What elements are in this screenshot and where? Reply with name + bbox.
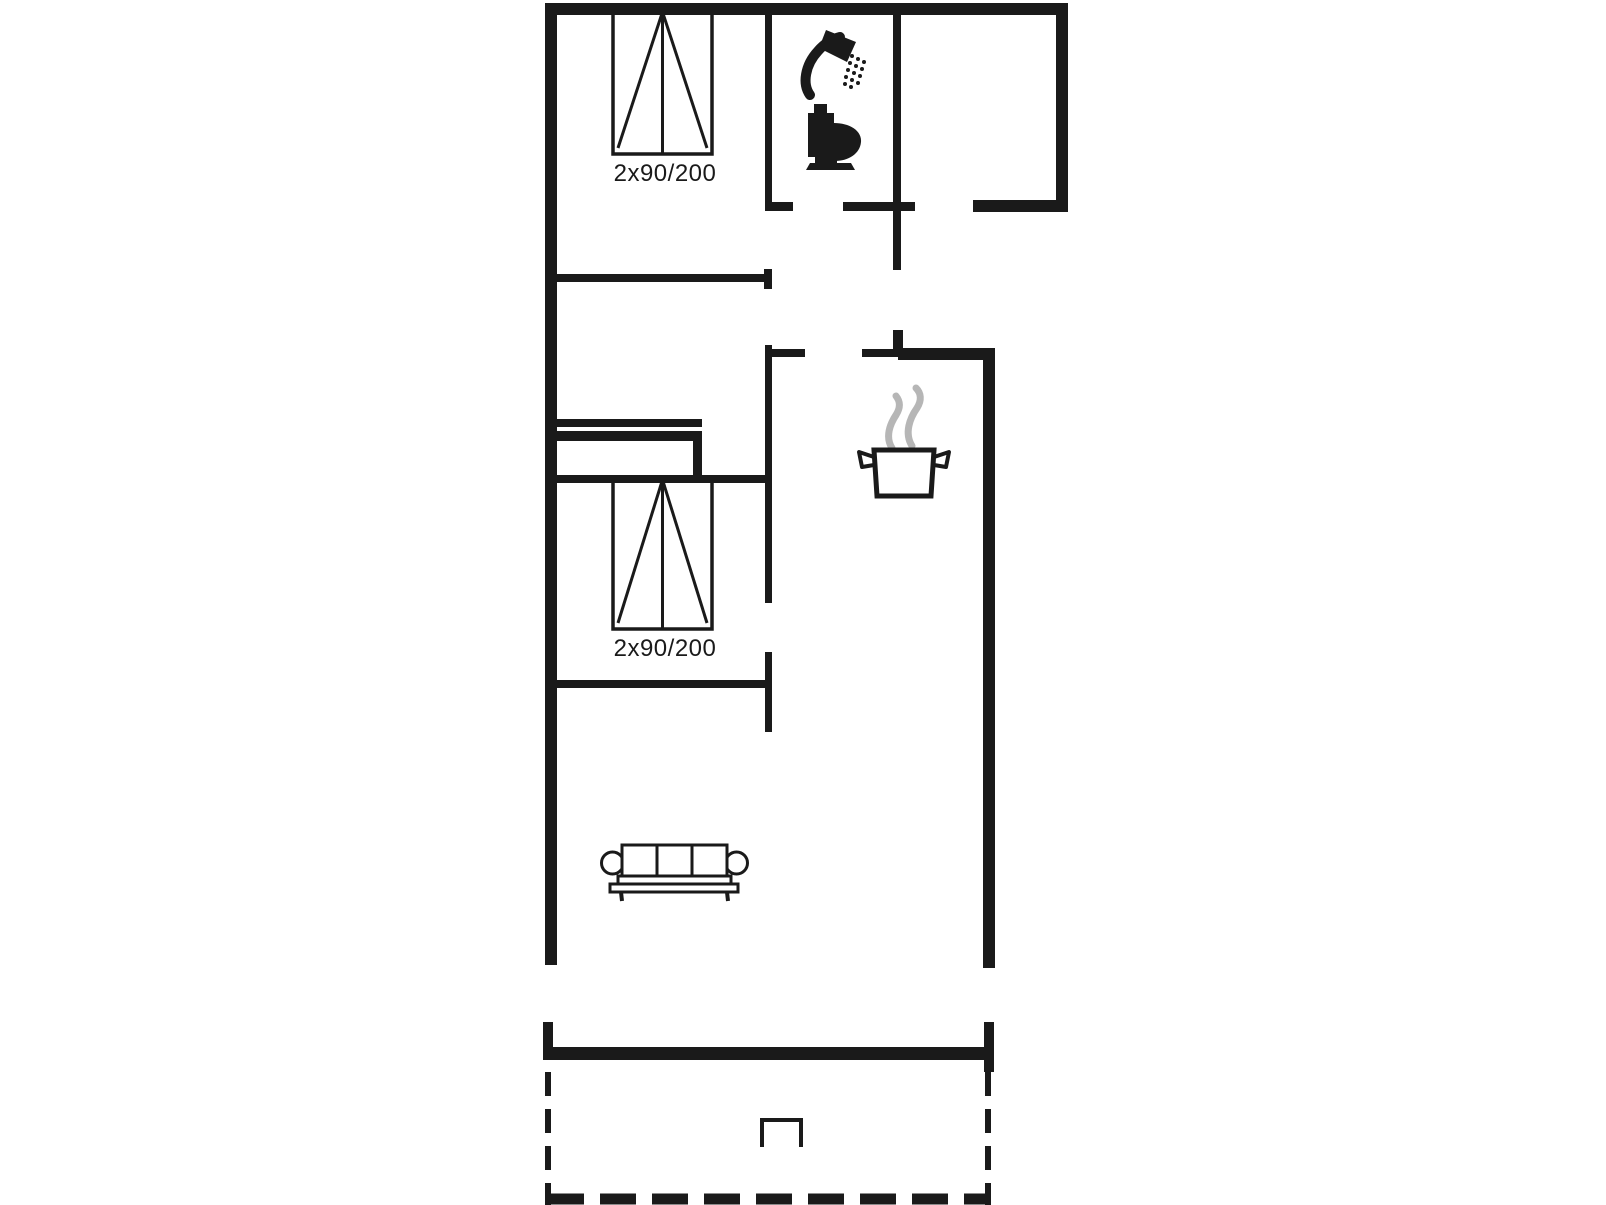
toilet-icon xyxy=(806,104,861,170)
wall-segment xyxy=(898,348,995,360)
pot-body xyxy=(874,450,934,496)
wall-segment xyxy=(862,349,898,357)
sofa-cushion xyxy=(657,845,692,876)
floor-plan-page: { "plan": { "background": "#ffffff", "li… xyxy=(0,0,1606,1205)
sofa-leg xyxy=(727,892,728,901)
wall-segment xyxy=(548,274,766,282)
toilet-bowl xyxy=(834,123,861,161)
bed-size-label: 2x90/200 xyxy=(614,160,717,187)
wall-segment xyxy=(1056,3,1068,212)
wall-segment xyxy=(545,3,1068,15)
wall-segment xyxy=(765,3,772,208)
sofa xyxy=(602,845,748,901)
pot-handle-right xyxy=(934,452,949,467)
sofa-cushion xyxy=(692,845,727,876)
wall-segment xyxy=(764,269,772,289)
wall-segment xyxy=(548,680,768,688)
toilet-lid-knob xyxy=(814,104,827,113)
wall-segment xyxy=(765,652,772,732)
wall-segment xyxy=(765,345,772,603)
terrace-dashed-boundary xyxy=(548,1072,990,1205)
sofa-leg xyxy=(621,892,622,901)
beds-layer: 2x90/2002x90/200 xyxy=(613,12,716,662)
wardrobe-part xyxy=(550,431,702,441)
bed-size-label: 2x90/200 xyxy=(614,635,717,662)
wardrobe-part xyxy=(693,431,702,481)
double-bed: 2x90/200 xyxy=(613,480,716,662)
steam-icon xyxy=(908,388,920,446)
sofa-cushion xyxy=(622,845,657,876)
wall-segment xyxy=(983,348,995,968)
steam-icon xyxy=(889,396,900,448)
double-bed: 2x90/200 xyxy=(613,12,716,187)
wardrobe-part xyxy=(550,419,702,427)
toilet-tank xyxy=(808,113,834,157)
sofa-armrest-left xyxy=(602,852,624,874)
wall-segment xyxy=(893,330,903,350)
pot-handle-left xyxy=(859,452,874,467)
shower-icon xyxy=(806,30,866,95)
floor-plan: 2x90/2002x90/200 xyxy=(0,0,1606,1205)
cooking-pot-icon xyxy=(859,388,949,496)
wall-segment xyxy=(545,3,557,965)
wall-segment xyxy=(772,349,805,357)
wall-segment xyxy=(973,200,1068,212)
toilet-base xyxy=(806,163,855,170)
terrace-step xyxy=(762,1120,801,1147)
wall-segment xyxy=(843,202,915,211)
sofa-armrest-right xyxy=(726,852,748,874)
wall-segment xyxy=(547,1047,988,1060)
wardrobe xyxy=(550,419,702,481)
wall-segment xyxy=(765,202,793,211)
wall-segment xyxy=(548,475,768,483)
wall-segment xyxy=(984,1022,994,1072)
wall-segment xyxy=(893,3,901,270)
